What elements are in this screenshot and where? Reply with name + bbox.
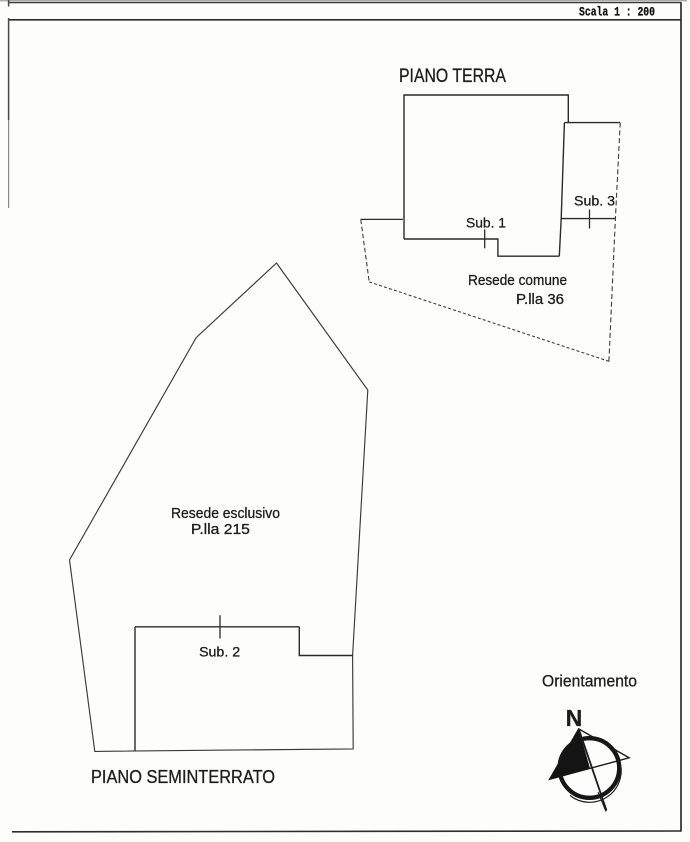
svg-text:Orientamento: Orientamento xyxy=(542,673,637,691)
svg-text:Resede esclusivo: Resede esclusivo xyxy=(171,506,280,522)
svg-text:PIANO SEMINTERRATO: PIANO SEMINTERRATO xyxy=(91,767,275,787)
svg-text:Sub. 1: Sub. 1 xyxy=(466,214,506,230)
svg-text:PIANO TERRA: PIANO TERRA xyxy=(399,65,506,87)
svg-text:Resede comune: Resede comune xyxy=(468,273,567,289)
svg-text:Sub. 3: Sub. 3 xyxy=(574,193,615,209)
svg-text:P.lla 36: P.lla 36 xyxy=(516,292,564,308)
svg-text:Scala 1 : 200: Scala 1 : 200 xyxy=(579,6,655,20)
svg-text:Sub. 2: Sub. 2 xyxy=(199,644,240,660)
svg-text:P.lla 215: P.lla 215 xyxy=(191,522,250,538)
svg-text:N: N xyxy=(566,705,583,731)
